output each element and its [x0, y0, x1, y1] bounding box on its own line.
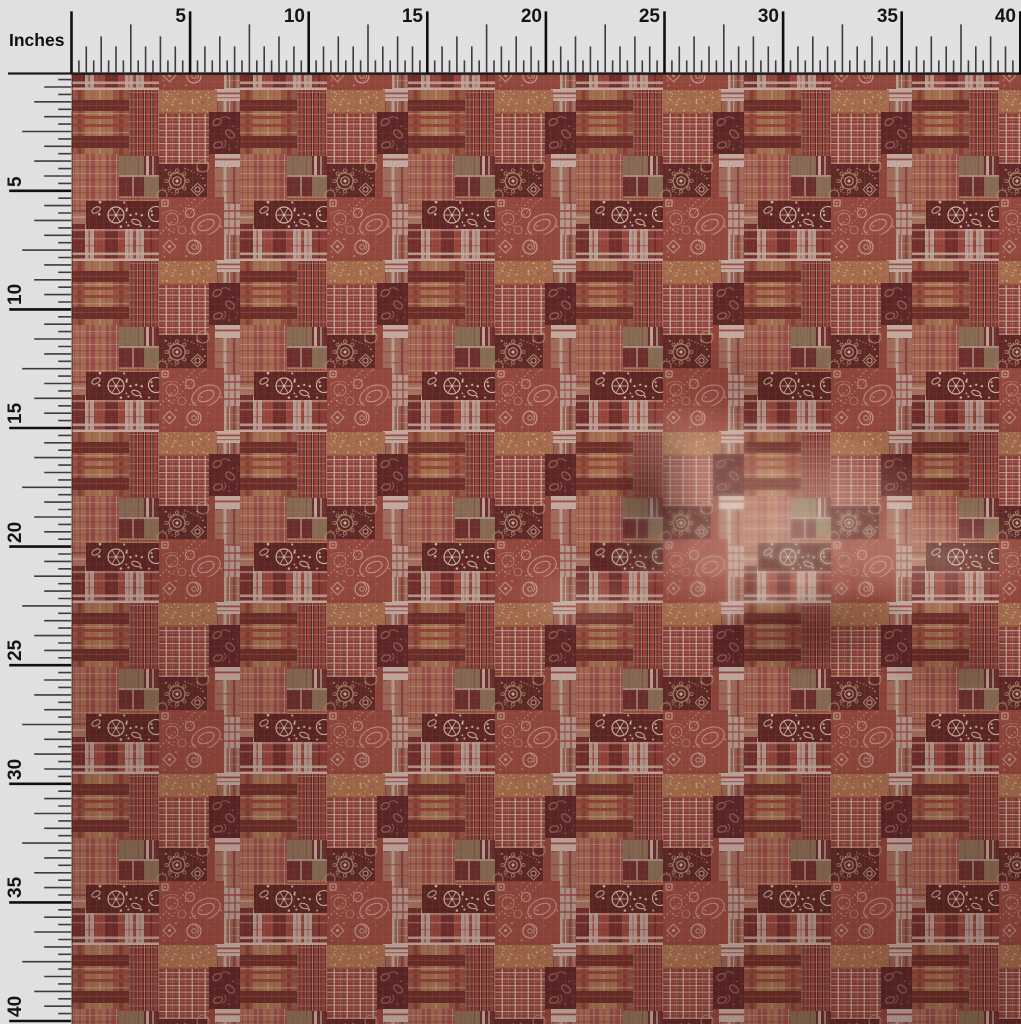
- svg-text:20: 20: [521, 6, 542, 27]
- svg-text:25: 25: [5, 639, 26, 661]
- svg-text:20: 20: [5, 522, 26, 543]
- svg-text:Inches: Inches: [9, 30, 65, 50]
- svg-text:15: 15: [402, 6, 424, 27]
- svg-text:10: 10: [284, 6, 305, 27]
- svg-text:5: 5: [5, 176, 26, 187]
- svg-text:30: 30: [5, 759, 26, 780]
- svg-text:5: 5: [175, 6, 186, 27]
- svg-text:40: 40: [995, 6, 1016, 27]
- svg-text:40: 40: [5, 996, 26, 1017]
- svg-text:35: 35: [877, 6, 899, 27]
- svg-text:30: 30: [758, 6, 779, 27]
- svg-text:35: 35: [5, 876, 26, 898]
- svg-text:25: 25: [639, 6, 661, 27]
- svg-text:15: 15: [5, 402, 26, 424]
- svg-text:10: 10: [5, 284, 26, 305]
